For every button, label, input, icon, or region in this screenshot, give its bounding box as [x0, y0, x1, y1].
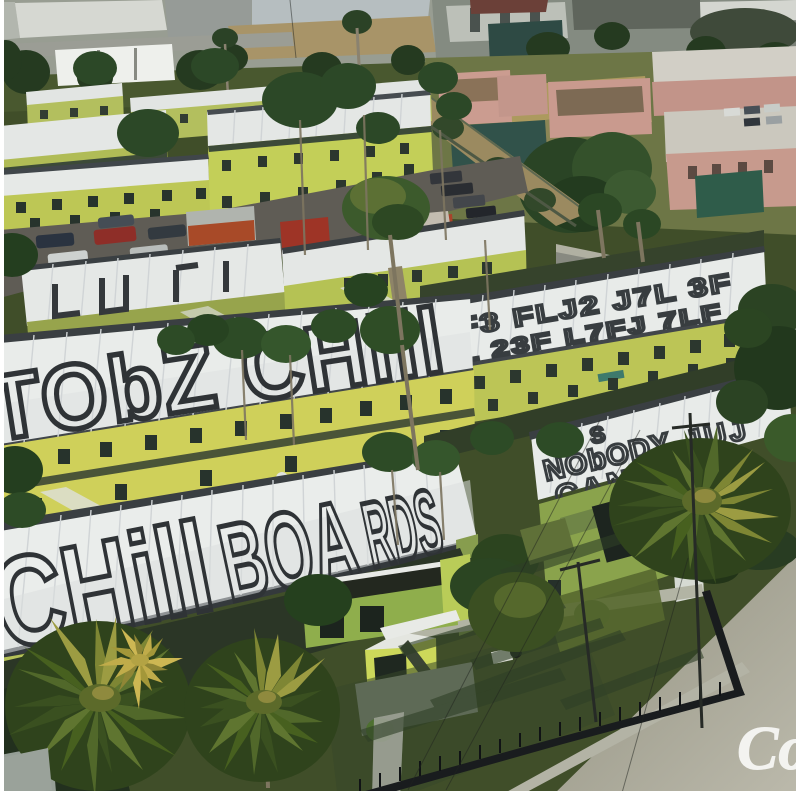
- svg-text:Coo: Coo: [737, 715, 800, 783]
